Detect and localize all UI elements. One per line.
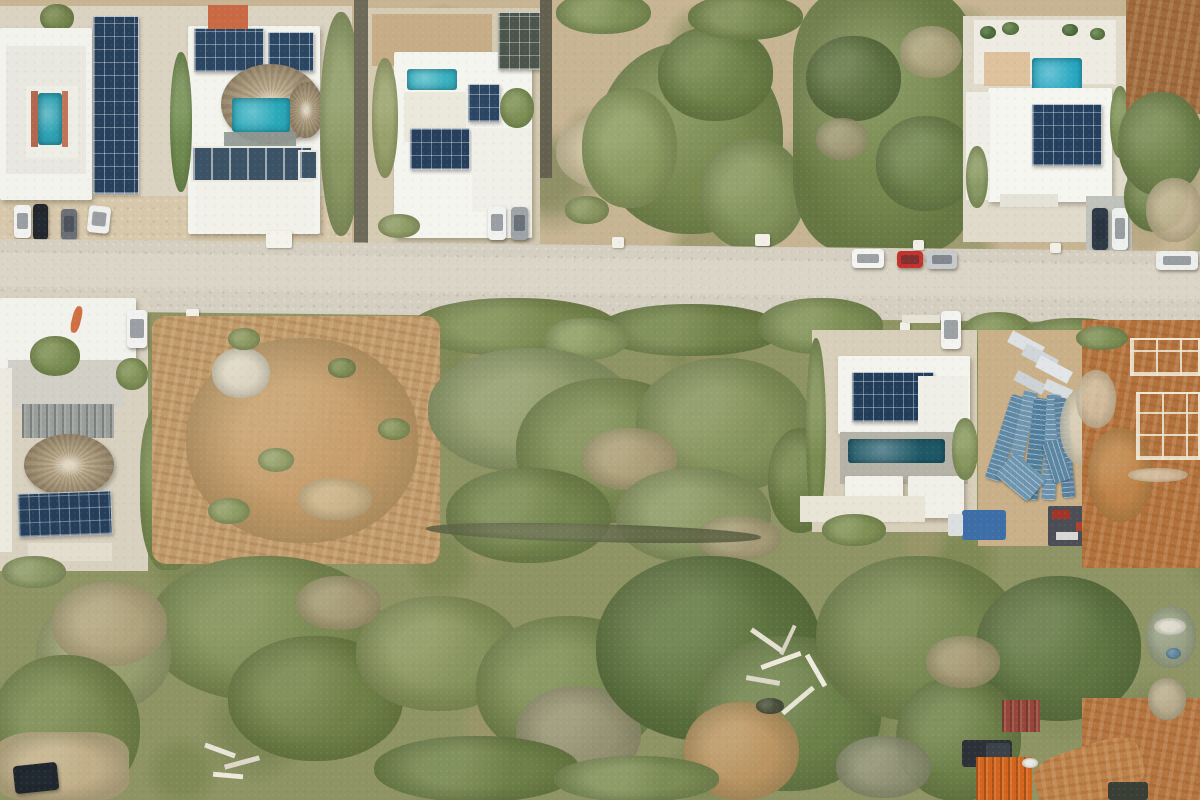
- houseA2-palapa-2: [288, 82, 324, 138]
- houseA-pergola-left: [31, 91, 38, 147]
- debris-pile-right-3: [1148, 678, 1186, 720]
- sand-right-edge: [1146, 178, 1200, 242]
- hedge-road-2: [598, 304, 783, 356]
- vacant-bush-4: [700, 138, 805, 250]
- lotA-palm-row: [170, 52, 192, 192]
- scrub-mid-top-dark-1: [806, 36, 901, 121]
- debris-white-1: [1022, 758, 1038, 768]
- lotF-shrub-right: [952, 418, 978, 480]
- houseA2-window-side: [298, 150, 318, 180]
- houseC-steps: [1000, 194, 1058, 207]
- foundation-grid-1: [1130, 338, 1200, 376]
- carA-white-1: [14, 205, 31, 238]
- houseC-plant-2: [1002, 22, 1019, 35]
- wallB-left: [354, 0, 368, 243]
- carB-gray: [511, 207, 528, 240]
- road-post-4: [1050, 243, 1061, 253]
- lotB-shrub-1: [372, 58, 398, 178]
- lotE-shrub-5: [208, 498, 250, 524]
- scrub-b-tan-3: [296, 576, 381, 630]
- houseB-solar-1: [468, 84, 500, 122]
- houseC-solar: [1032, 104, 1102, 166]
- road-post-1: [612, 237, 624, 248]
- scrub-mid-4: [446, 468, 611, 563]
- carRoad-silver: [927, 251, 957, 269]
- houseC-plant-4: [1090, 28, 1105, 40]
- carA-black: [33, 204, 48, 240]
- lotE-white-patch: [212, 348, 270, 398]
- lotB-shrub-2: [500, 88, 534, 128]
- carBL-dark: [13, 762, 60, 794]
- carC-dark: [1092, 208, 1108, 250]
- houseC-plant-3: [1062, 24, 1078, 36]
- lotC-plant-left: [966, 146, 988, 208]
- carA-white-2: [87, 205, 112, 234]
- houseA-pergola-right: [62, 91, 68, 147]
- houseC-lounge: [984, 52, 1030, 86]
- vacant-bush-5: [565, 196, 609, 224]
- houseD-roof-ribbed: [22, 404, 114, 438]
- houseF-gate-wall: [902, 315, 940, 323]
- houseA2-pool: [232, 98, 290, 132]
- shack-red-roof: [1002, 700, 1040, 732]
- scrub-mid-top-gap: [816, 118, 868, 160]
- houseA-pool: [38, 93, 62, 145]
- road-post-2: [755, 234, 770, 246]
- carB-white: [488, 206, 506, 240]
- carRoad-white-2: [1156, 251, 1198, 270]
- planter-orange: [208, 5, 248, 29]
- carRoad-red: [897, 251, 923, 268]
- lotD-shrub-1: [116, 358, 148, 390]
- debris-pile-right-2: [1154, 618, 1186, 635]
- lotE-shrub-3: [258, 448, 294, 472]
- lotE-shrub-4: [378, 418, 410, 440]
- container-white: [1056, 532, 1078, 540]
- scrub-b-gray: [836, 736, 931, 798]
- houseA2-terrace: [196, 182, 314, 232]
- vacant-bush-3: [658, 26, 773, 121]
- carRoad-white-1: [852, 249, 884, 268]
- foundation-grid-2: [1136, 392, 1200, 460]
- houseD-palapa: [24, 434, 114, 496]
- scrub-b-tan-1: [52, 582, 167, 666]
- houseA2-window-wall: [191, 146, 313, 182]
- carF-white: [941, 311, 961, 349]
- treeD: [30, 336, 80, 376]
- houseD-solar: [17, 490, 112, 537]
- gate-posts: [266, 231, 292, 248]
- scrub-bottom-edge-1: [374, 736, 579, 800]
- scrub-bottom-edge-2: [554, 756, 719, 800]
- houseA2-deck: [224, 132, 296, 147]
- houseB-garage: [472, 128, 532, 212]
- scrub-topright: [1118, 92, 1200, 196]
- debris-dark: [756, 698, 784, 714]
- lotB-shrub-3: [378, 214, 420, 238]
- houseA-solar-array: [93, 16, 139, 194]
- debris-blue: [1166, 648, 1181, 659]
- site-dust: [1076, 370, 1116, 428]
- aerial-photo: [0, 0, 1200, 800]
- lotE-shrub-2: [328, 358, 356, 378]
- truck-cab: [948, 514, 963, 536]
- lotE-shrub-1: [228, 328, 260, 350]
- road-post-3: [913, 240, 924, 250]
- houseD-wing: [0, 368, 12, 552]
- scrub-mid-top-light: [900, 26, 962, 78]
- truck-tarp: [962, 510, 1006, 540]
- container-red-1: [1052, 510, 1070, 519]
- foundation-marks: [1128, 468, 1188, 482]
- excavator-dark: [1108, 782, 1148, 800]
- houseB-pool: [407, 69, 457, 90]
- houseC-plant-1: [980, 26, 996, 39]
- houseF-pool: [848, 439, 945, 463]
- carA-gray: [61, 209, 77, 240]
- houseB-pergola: [498, 12, 546, 70]
- wallB-right: [540, 0, 552, 178]
- carD-white: [127, 310, 147, 348]
- scrub-b-tan-4: [926, 636, 1000, 688]
- vacant-bush-2: [582, 88, 677, 208]
- lotF-hedge-left: [806, 338, 826, 522]
- houseB-solar-2: [410, 128, 470, 170]
- carC-white: [1112, 208, 1128, 250]
- lotF-shrub-bottom: [822, 514, 886, 546]
- scrub-mid-top-dark-2: [876, 116, 976, 211]
- lotD-shrub-2: [2, 556, 66, 588]
- site-shrub-top: [1076, 326, 1128, 350]
- lotE-light-patch: [298, 478, 372, 520]
